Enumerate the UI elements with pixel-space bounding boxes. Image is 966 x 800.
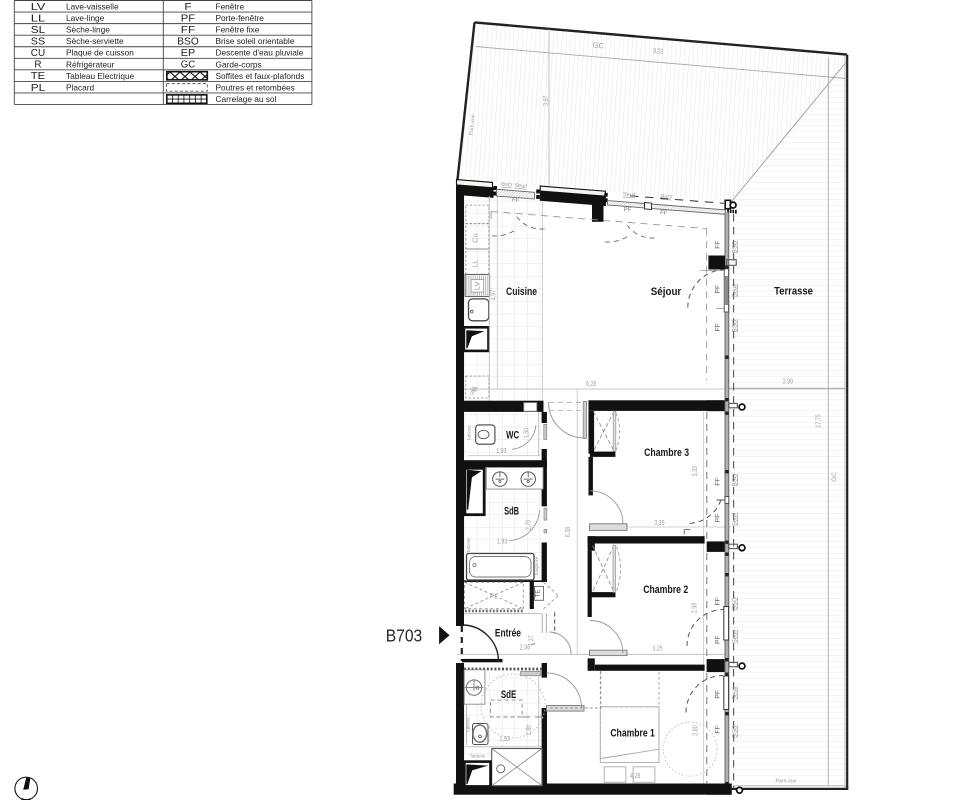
svg-text:PF: PF	[715, 635, 722, 644]
svg-text:TE: TE	[536, 590, 542, 598]
svg-text:LV: LV	[31, 1, 45, 13]
svg-text:LV: LV	[473, 281, 482, 290]
svg-text:Baignoire: Baignoire	[534, 556, 539, 576]
svg-text:2,90: 2,90	[783, 377, 793, 386]
svg-text:Soffites et faux-plafonds: Soffites et faux-plafonds	[216, 71, 305, 81]
svg-text:PF: PF	[715, 690, 722, 699]
svg-text:GC: GC	[831, 472, 838, 482]
svg-text:TE: TE	[31, 70, 45, 82]
svg-text:Chambre 2: Chambre 2	[643, 584, 688, 596]
svg-text:6,28: 6,28	[586, 379, 596, 388]
svg-text:BsO: BsO	[661, 194, 673, 201]
svg-text:Tablette: Tablette	[470, 753, 486, 758]
svg-text:Plaque de cuisson: Plaque de cuisson	[66, 48, 134, 58]
svg-text:2,80: 2,80	[690, 725, 699, 735]
svg-text:2,70: 2,70	[523, 520, 532, 530]
svg-text:4,97: 4,97	[489, 290, 498, 300]
svg-text:SdE: SdE	[501, 689, 517, 701]
svg-text:1,37: 1,37	[526, 635, 535, 645]
svg-text:Tableau Electrique: Tableau Electrique	[66, 71, 135, 81]
svg-text:Seuil: Seuil	[732, 687, 738, 700]
svg-text:Tablette: Tablette	[467, 425, 472, 441]
svg-text:Réfrigérateur: Réfrigérateur	[66, 59, 115, 69]
svg-text:PF: PF	[181, 12, 195, 24]
svg-text:PF: PF	[715, 285, 722, 294]
svg-text:Brise soleil orientable: Brise soleil orientable	[216, 36, 295, 46]
svg-text:F: F	[184, 1, 191, 13]
svg-text:2,98: 2,98	[689, 603, 698, 613]
svg-text:3,33: 3,33	[690, 466, 699, 476]
svg-text:GC: GC	[181, 59, 196, 71]
svg-text:Seuil: Seuil	[732, 284, 738, 297]
svg-text:FF: FF	[181, 24, 195, 36]
svg-text:FF: FF	[715, 323, 722, 331]
svg-text:PF: PF	[715, 514, 722, 523]
svg-text:PF: PF	[623, 207, 631, 214]
svg-text:Pare-vue: Pare-vue	[775, 779, 796, 785]
svg-text:Lave-vaisselle: Lave-vaisselle	[66, 1, 119, 11]
svg-text:Seuil: Seuil	[623, 192, 636, 199]
svg-text:EP: EP	[181, 47, 195, 59]
svg-text:1,93: 1,93	[499, 734, 509, 743]
svg-text:PL: PL	[31, 82, 46, 94]
svg-text:3,39: 3,39	[654, 518, 664, 527]
svg-text:PL: PL	[490, 594, 499, 601]
svg-text:FF: FF	[715, 597, 722, 605]
svg-text:Carrelage au sol: Carrelage au sol	[216, 94, 277, 104]
svg-text:R: R	[34, 59, 42, 71]
svg-text:3,97: 3,97	[541, 95, 550, 105]
svg-text:Cuisine: Cuisine	[506, 286, 537, 298]
svg-text:Entrée: Entrée	[495, 628, 521, 640]
svg-text:Sèche-serviette: Sèche-serviette	[66, 36, 124, 46]
svg-text:Porte-fenêtre: Porte-fenêtre	[216, 13, 265, 23]
svg-text:Descente d'eau pluviale: Descente d'eau pluviale	[216, 48, 304, 58]
svg-text:2,80: 2,80	[524, 725, 533, 735]
svg-text:BSO: BSO	[732, 473, 738, 486]
svg-text:LL: LL	[471, 259, 480, 267]
svg-text:1,50: 1,50	[522, 428, 531, 438]
svg-text:4,28: 4,28	[630, 771, 640, 780]
svg-text:FF: FF	[715, 240, 722, 248]
svg-text:LL: LL	[31, 12, 46, 24]
svg-text:Terrasse: Terrasse	[774, 286, 813, 298]
svg-text:Seuil: Seuil	[732, 630, 738, 643]
svg-text:Sèche-linge: Sèche-linge	[66, 25, 110, 35]
svg-text:FF: FF	[715, 477, 722, 485]
svg-text:Fenêtre: Fenêtre	[216, 1, 245, 11]
svg-text:1,93: 1,93	[497, 536, 507, 545]
svg-text:SS: SS	[31, 36, 45, 48]
svg-text:BSO: BSO	[177, 36, 199, 48]
svg-text:BSO: BSO	[732, 597, 738, 610]
svg-text:17,75: 17,75	[814, 414, 823, 428]
svg-text:Tablette: Tablette	[466, 717, 471, 733]
svg-text:Garde-corps: Garde-corps	[216, 59, 262, 69]
svg-text:B703: B703	[386, 626, 423, 646]
svg-text:Tablette: Tablette	[466, 537, 471, 553]
svg-text:RC: RC	[471, 387, 477, 395]
svg-text:Fenêtre fixe: Fenêtre fixe	[216, 25, 260, 35]
svg-text:FF: FF	[660, 210, 668, 217]
svg-text:9,03: 9,03	[653, 46, 664, 56]
svg-text:Chambre 3: Chambre 3	[644, 447, 689, 459]
svg-text:6,38: 6,38	[563, 527, 572, 537]
svg-text:Placard: Placard	[66, 82, 95, 92]
svg-text:3,25: 3,25	[652, 644, 662, 653]
svg-text:Seuil: Seuil	[514, 183, 527, 190]
svg-text:BSO: BSO	[732, 319, 738, 332]
svg-text:WC: WC	[506, 430, 519, 442]
svg-text:Poutres et retombées: Poutres et retombées	[216, 82, 295, 92]
svg-text:SL: SL	[31, 24, 46, 36]
svg-text:GC: GC	[592, 41, 605, 51]
svg-text:1,93: 1,93	[496, 446, 506, 455]
svg-text:Chambre 1: Chambre 1	[610, 728, 655, 740]
svg-text:Séjour: Séjour	[651, 286, 682, 298]
svg-text:Lave-linge: Lave-linge	[66, 13, 105, 23]
svg-text:FF: FF	[715, 725, 722, 733]
svg-text:SdB: SdB	[504, 506, 519, 518]
svg-text:FF: FF	[512, 198, 520, 205]
svg-text:BsO: BsO	[501, 182, 513, 189]
svg-text:Seuil: Seuil	[732, 513, 738, 526]
svg-text:BSO: BSO	[732, 240, 738, 253]
svg-text:Cu: Cu	[471, 233, 480, 243]
svg-text:BSO: BSO	[732, 725, 738, 738]
svg-text:CU: CU	[31, 47, 45, 59]
